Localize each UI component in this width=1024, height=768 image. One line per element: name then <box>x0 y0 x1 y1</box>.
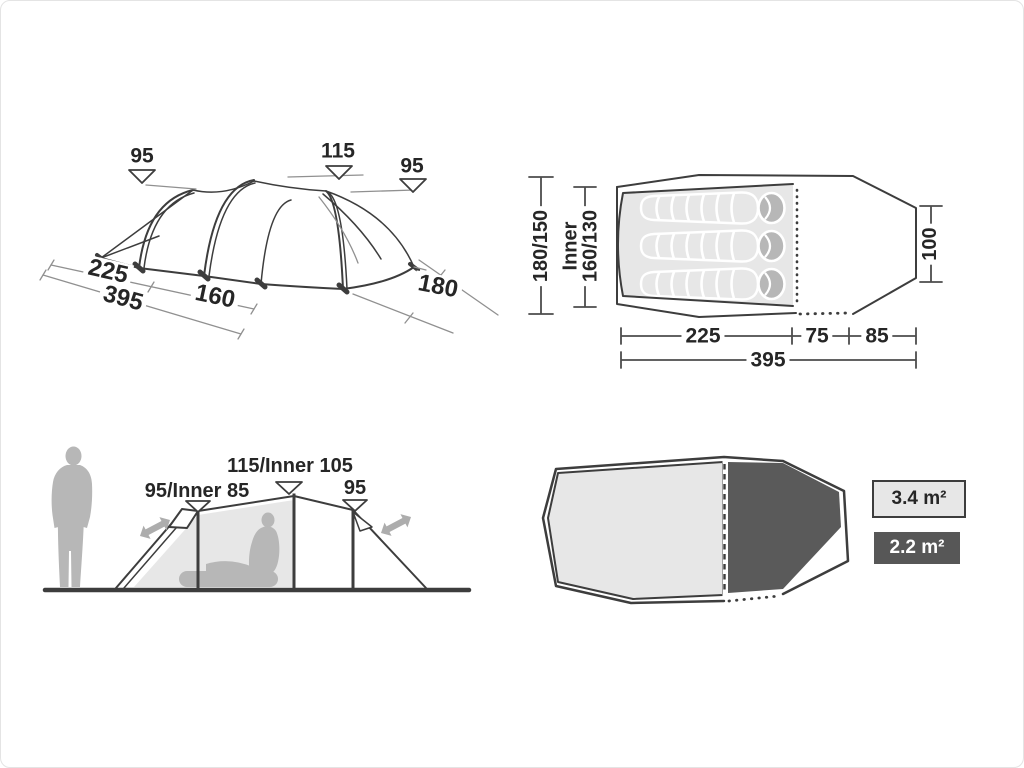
inner-area-shape <box>548 462 723 599</box>
perspective-view <box>40 166 498 339</box>
person-silhouette <box>52 447 93 588</box>
height-marker-triangle-icon <box>129 170 155 183</box>
dim-label-inner-width: Inner 160/130 <box>561 206 602 286</box>
height-label-middle-inner: 115/Inner 105 <box>227 456 353 476</box>
height-label-left: 95 <box>130 145 153 166</box>
height-marker-triangle-icon <box>276 482 302 494</box>
dim-label-porch: 85 <box>861 325 892 346</box>
dim-label-rear-width: 100 <box>920 223 940 264</box>
vestibule-area-value: 2.2 m² <box>890 537 945 559</box>
dim-label-outer-width: 180/150 <box>531 206 551 286</box>
height-marker-triangle-icon <box>326 166 352 179</box>
vestibule-area-badge: 2.2 m² <box>874 532 960 564</box>
height-markers-3d <box>129 166 426 192</box>
ventilation-arrow-icon <box>377 510 414 539</box>
height-label-right: 95 <box>400 155 423 176</box>
dim-label-vestibule: 75 <box>801 325 832 346</box>
height-label-middle: 115 <box>321 140 355 161</box>
height-label-left-inner: 95/Inner 85 <box>145 481 250 501</box>
inner-area-badge: 3.4 m² <box>872 480 966 518</box>
sleeping-bag-side-icon <box>179 571 278 587</box>
tent-3d-outline <box>89 180 426 292</box>
inner-width-value: 160/130 <box>581 210 601 282</box>
tent-spec-diagram: 95 115 95 225 395 160 180 180/150 Inner … <box>0 0 1024 768</box>
inner-width-word: Inner <box>561 210 581 282</box>
area-plan-view <box>543 457 848 603</box>
height-label-right-outer: 95 <box>344 478 366 498</box>
dim-label-total-length: 395 <box>746 349 789 370</box>
inner-area-value: 3.4 m² <box>892 488 947 510</box>
diagram-artwork <box>1 1 1024 768</box>
dim-label-inner-length: 225 <box>681 325 724 346</box>
